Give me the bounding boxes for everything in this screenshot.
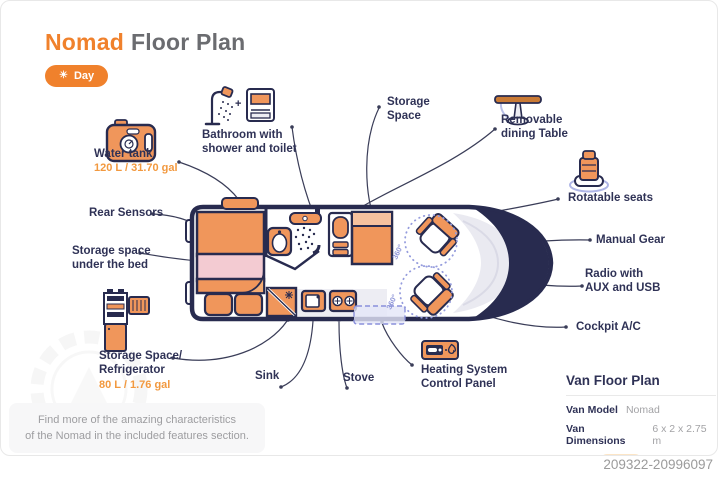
label-storage-under-bed: Storage space under the bed [72, 244, 151, 273]
label-rear-sensors: Rear Sensors [89, 206, 163, 220]
heating-panel-icon [422, 341, 458, 359]
label-water-tank: Water tank 120 L / 31.70 gal [94, 147, 178, 176]
label-heating: Heating System Control Panel [421, 363, 507, 392]
rotatable-seat-icon [570, 151, 608, 192]
refrigerator-icon [104, 289, 149, 351]
dinette-unit [329, 213, 352, 256]
info-panel-title: Van Floor Plan [566, 373, 716, 396]
info-row-model: Van Model Nomad [566, 404, 716, 416]
plus-sign: + [235, 98, 241, 110]
wardrobe-storage [352, 212, 392, 264]
footer-note: Find more of the amazing characteristics… [9, 403, 265, 453]
label-manual-gear: Manual Gear [596, 233, 665, 247]
label-sink: Sink [255, 369, 279, 383]
day-mode-toggle[interactable]: ☀ Day [45, 65, 108, 87]
bed-zone [197, 212, 264, 315]
nomad-floor-plan-page: 360° 360° + [0, 0, 718, 480]
label-fridge: Storage Space/ Refrigerator 80 L / 1.76 … [99, 349, 182, 393]
label-storage-space: Storage Space [387, 95, 430, 124]
shower-icon [206, 86, 233, 124]
van-info-panel: Van Floor Plan Van Model Nomad Van Dimen… [566, 373, 716, 456]
info-row-dimensions: Van Dimensions 6 x 2 x 2.75 m [566, 423, 716, 447]
heating-panel-zone [354, 306, 405, 324]
title-accent: Nomad [45, 29, 124, 55]
label-bathroom: Bathroom with shower and toilet [202, 128, 297, 157]
page-title: NomadFloor Plan [45, 29, 245, 56]
sun-icon: ☀ [59, 71, 68, 81]
image-id: 209322-20996097 [603, 457, 713, 472]
label-dining-table: Removable dining Table [501, 113, 568, 142]
label-stove: Stove [343, 371, 374, 385]
units-badge[interactable]: Meter [600, 454, 642, 456]
floor-plan-card: 360° 360° + [0, 0, 718, 456]
title-rest: Floor Plan [131, 29, 245, 55]
label-radio: Radio with AUX and USB [585, 267, 660, 296]
label-cockpit-ac: Cockpit A/C [576, 320, 641, 334]
roof-water-tank [222, 198, 258, 209]
fan-glyph [285, 291, 293, 299]
label-rotatable-seats: Rotatable seats [568, 191, 653, 205]
toilet-icon [247, 89, 274, 121]
van-floor-plan: 360° 360° [186, 198, 551, 324]
day-mode-label: Day [74, 70, 94, 82]
info-row-units: Units Meter [566, 454, 716, 456]
